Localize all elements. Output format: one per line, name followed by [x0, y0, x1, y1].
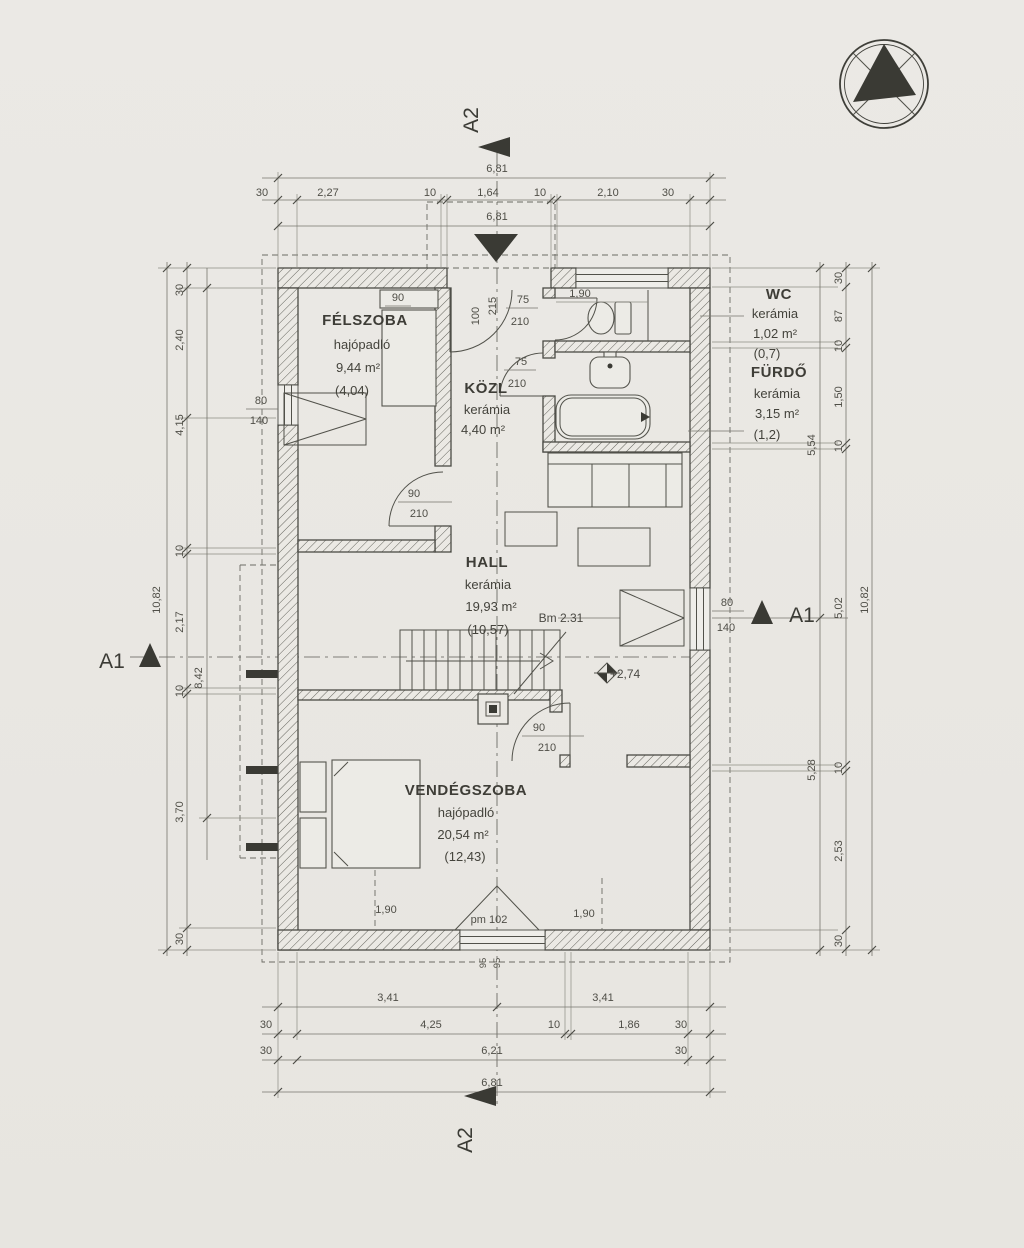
- svg-text:A1: A1: [789, 604, 815, 627]
- svg-text:(0,7): (0,7): [754, 346, 781, 361]
- dim-label: 2,17: [174, 611, 186, 632]
- section-arrow-icon: [478, 137, 510, 157]
- dim-label: 1,64: [477, 187, 498, 199]
- svg-text:hajópadló: hajópadló: [334, 337, 390, 352]
- section-arrow-icon: [751, 600, 773, 624]
- dim-label: 4,15: [174, 414, 186, 435]
- dim-label: 87: [833, 310, 845, 322]
- entry-arrow-icon: [474, 234, 518, 262]
- window-size-label: 140: [717, 622, 735, 634]
- dim-label: 10: [424, 187, 436, 199]
- table-small: [505, 512, 557, 546]
- dim-label: 10: [174, 545, 186, 557]
- dim-label: 10,82: [859, 586, 871, 614]
- dim-label: 30: [174, 284, 186, 296]
- dim-label: 10,82: [151, 586, 163, 614]
- svg-text:kerámia: kerámia: [752, 306, 799, 321]
- dim-label: 6,81: [481, 1077, 502, 1089]
- dim-label: 3,41: [377, 992, 398, 1004]
- dim-label: 30: [260, 1045, 272, 1057]
- window-size-label: 80: [255, 395, 267, 407]
- section-arrow-icon: [139, 643, 161, 667]
- dim-label: 3,70: [174, 801, 186, 822]
- dim-label: 8,42: [193, 667, 205, 688]
- dim-label: 1,86: [618, 1019, 639, 1031]
- dim-label: 3,41: [592, 992, 613, 1004]
- sink-icon: [590, 352, 630, 388]
- room-label-hall: HALL kerámia 19,93 m² (10,57): [465, 554, 517, 637]
- section-arrow-icon: [464, 1086, 496, 1106]
- section-marker-a1-right: A1: [751, 600, 815, 627]
- room-label-vendegszoba: VENDÉGSZOBA hajópadló 20,54 m² (12,43): [405, 782, 527, 864]
- opening-labels: 80 140 80 140 90 210 90 210 75 210 75 21…: [246, 288, 744, 754]
- toilet-icon: [588, 302, 631, 334]
- dim-label: 30: [833, 272, 845, 284]
- floor-plan-svg: 6,81 30 2,27 10 1,64 10 2,10 30 6,81 3,4…: [0, 0, 1024, 1248]
- column: [478, 694, 508, 724]
- svg-text:1,02 m²: 1,02 m²: [753, 326, 798, 341]
- door-size-label: 75: [515, 356, 527, 368]
- svg-text:3,15 m²: 3,15 m²: [755, 406, 800, 421]
- bed-double: [300, 760, 420, 868]
- svg-text:WC: WC: [766, 286, 792, 303]
- dim-label: 30: [260, 1019, 272, 1031]
- svg-text:(12,43): (12,43): [444, 849, 485, 864]
- dim-label: 2,10: [597, 187, 618, 199]
- window-top: [576, 268, 668, 288]
- sill-label: 95: [492, 958, 503, 969]
- window-width-label: 1,90: [375, 904, 396, 916]
- dim-label: 10: [174, 685, 186, 697]
- svg-text:FÉLSZOBA: FÉLSZOBA: [322, 312, 408, 329]
- svg-text:kerámia: kerámia: [754, 386, 801, 401]
- svg-text:kerámia: kerámia: [464, 402, 511, 417]
- north-compass-icon: [840, 40, 928, 128]
- section-marker-a2-top: A2: [460, 107, 518, 262]
- dim-label: 6,81: [486, 211, 507, 223]
- dim-label: 30: [675, 1019, 687, 1031]
- bottom-dimensions: 3,41 3,41 30 4,25 10 1,86 30 30 6,21 30 …: [260, 952, 726, 1098]
- dim-label: 10: [534, 187, 546, 199]
- svg-text:VENDÉGSZOBA: VENDÉGSZOBA: [405, 782, 527, 799]
- dim-label: 2,53: [833, 840, 845, 861]
- dim-label: 30: [833, 935, 845, 947]
- svg-text:19,93 m²: 19,93 m²: [465, 599, 517, 614]
- window-size-label: 1,90: [569, 288, 590, 300]
- door-size-label: 210: [511, 316, 529, 328]
- left-dimensions: 10,82 30 2,40 4,15 10 2,17 10 3,70 30 8,…: [151, 262, 276, 956]
- room-label-kozl: KÖZL kerámia 4,40 m²: [461, 380, 511, 437]
- bathtub-icon: [556, 395, 650, 439]
- door-size-label: 210: [538, 742, 556, 754]
- svg-text:A2: A2: [454, 1127, 477, 1153]
- dim-label: 2,27: [317, 187, 338, 199]
- wardrobe-size-label: 90: [392, 292, 404, 304]
- dim-label: 5,02: [833, 597, 845, 618]
- table-large: [578, 528, 650, 566]
- dim-label: 6,21: [481, 1045, 502, 1057]
- svg-text:9,44 m²: 9,44 m²: [336, 360, 381, 375]
- sill-label: 95: [478, 958, 489, 969]
- svg-text:4,40 m²: 4,40 m²: [461, 422, 506, 437]
- door-size-label: 210: [410, 508, 428, 520]
- dim-label: 30: [675, 1045, 687, 1057]
- door-size-label: 90: [408, 488, 420, 500]
- window-bottom: [460, 930, 545, 950]
- door-size-label: 215: [487, 297, 499, 315]
- floor-plan-page: 6,81 30 2,27 10 1,64 10 2,10 30 6,81 3,4…: [0, 0, 1024, 1248]
- svg-text:(1,2): (1,2): [754, 427, 781, 442]
- beam-label: Bm 2.31: [539, 611, 584, 625]
- dim-label: 30: [662, 187, 674, 199]
- dim-label: 5,54: [806, 434, 818, 455]
- window-left: [278, 385, 298, 425]
- dim-label: 5,28: [806, 759, 818, 780]
- svg-text:A2: A2: [460, 107, 483, 133]
- window-shaft: [620, 590, 684, 646]
- section-marker-a2-bottom: A2: [454, 1086, 496, 1153]
- dim-label: 10: [833, 440, 845, 452]
- level-label: +2,74: [610, 667, 641, 681]
- door-size-label: 100: [470, 307, 482, 325]
- window-size-label: 140: [250, 415, 268, 427]
- svg-text:KÖZL: KÖZL: [464, 380, 507, 397]
- cabinet-hall: [548, 453, 682, 507]
- dim-label: 2,40: [174, 329, 186, 350]
- door-size-label: 75: [517, 294, 529, 306]
- svg-text:20,54 m²: 20,54 m²: [437, 827, 489, 842]
- svg-text:FÜRDŐ: FÜRDŐ: [751, 363, 807, 381]
- window-right: [690, 588, 710, 650]
- dim-label: 10: [833, 762, 845, 774]
- dim-label: 1,50: [833, 386, 845, 407]
- dim-label: 6,81: [486, 163, 507, 175]
- window-width-label: 1,90: [573, 908, 594, 920]
- svg-text:(10,57): (10,57): [467, 622, 508, 637]
- dim-label: 30: [174, 933, 186, 945]
- dim-label: 10: [833, 340, 845, 352]
- svg-text:kerámia: kerámia: [465, 577, 512, 592]
- parapet-label: pm 102: [471, 914, 508, 926]
- dim-label: 30: [256, 187, 268, 199]
- svg-text:(4,04): (4,04): [335, 383, 369, 398]
- svg-text:A1: A1: [99, 650, 125, 673]
- window-size-label: 80: [721, 597, 733, 609]
- door-size-label: 90: [533, 722, 545, 734]
- dim-label: 10: [548, 1019, 560, 1031]
- section-marker-a1-left: A1: [99, 643, 161, 673]
- svg-text:HALL: HALL: [466, 554, 508, 571]
- svg-text:hajópadló: hajópadló: [438, 805, 494, 820]
- room-label-wc: WC kerámia 1,02 m² (0,7): [700, 286, 799, 361]
- door-size-label: 210: [508, 378, 526, 390]
- stairs: [400, 630, 566, 694]
- dim-label: 4,25: [420, 1019, 441, 1031]
